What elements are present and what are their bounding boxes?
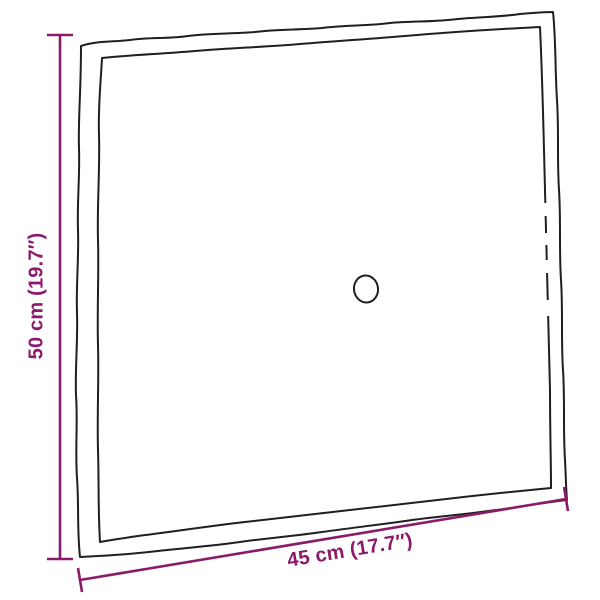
seam-dash-gap	[543, 300, 552, 316]
width-dimension-shaft	[80, 499, 566, 580]
cushion-button-icon	[352, 274, 380, 304]
height-dimension-label: 50 cm (19.7″)	[26, 233, 49, 360]
cushion-outer-edge	[76, 12, 567, 557]
product-dimension-diagram: 50 cm (19.7″) 45 cm (17.7″)	[0, 0, 600, 600]
cushion-drawing	[76, 12, 567, 557]
cushion-diagram-canvas	[0, 0, 600, 600]
height-dimension-line	[47, 35, 73, 559]
seam-dash-gap	[542, 233, 551, 245]
cushion-seam-line	[98, 27, 551, 542]
seam-dash-gap	[542, 203, 551, 216]
width-dimension-line	[78, 487, 568, 592]
seam-dash-gap	[543, 260, 552, 273]
